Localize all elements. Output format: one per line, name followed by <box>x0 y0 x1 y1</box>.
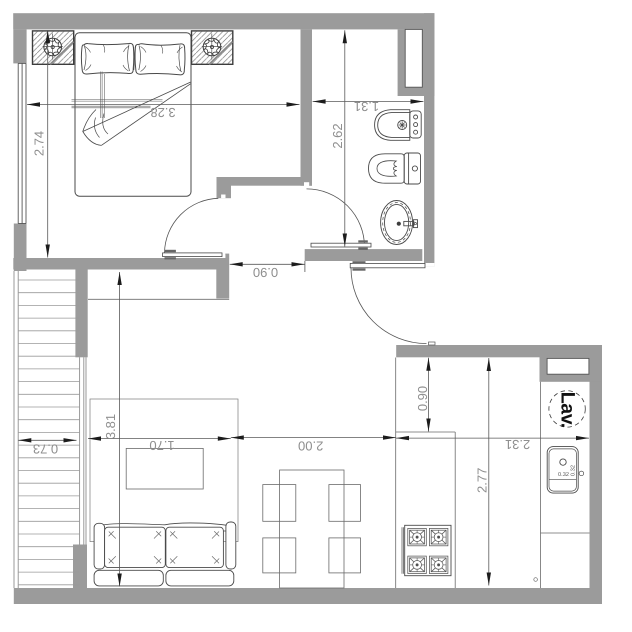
svg-text:1.70: 1.70 <box>149 438 174 453</box>
svg-text:0.32: 0.32 <box>558 472 569 478</box>
svg-text:1.31: 1.31 <box>354 99 379 114</box>
svg-text:3.81: 3.81 <box>103 414 118 439</box>
svg-text:0.32: 0.32 <box>571 465 577 476</box>
svg-text:0.90: 0.90 <box>415 386 430 411</box>
svg-text:Lav.: Lav. <box>557 392 579 428</box>
svg-text:0.90: 0.90 <box>253 265 278 280</box>
svg-text:0.73: 0.73 <box>33 441 58 456</box>
svg-text:2.62: 2.62 <box>330 123 345 148</box>
svg-text:2.74: 2.74 <box>32 131 47 156</box>
svg-text:3.28: 3.28 <box>150 105 175 120</box>
svg-text:2.77: 2.77 <box>474 468 489 493</box>
svg-text:2.31: 2.31 <box>505 437 530 452</box>
svg-text:2.00: 2.00 <box>298 438 323 453</box>
